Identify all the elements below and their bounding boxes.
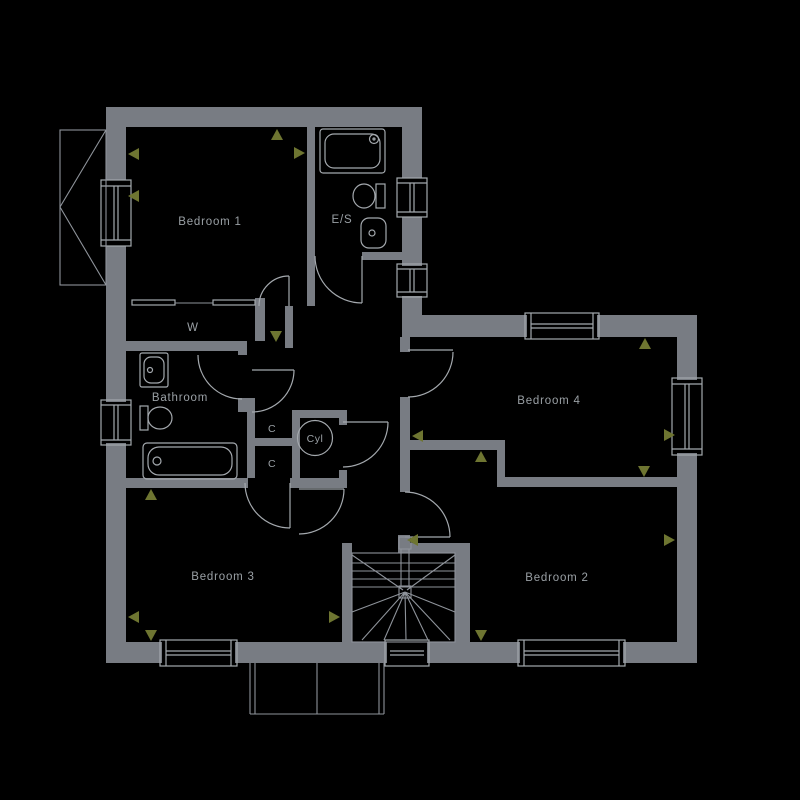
stairs <box>352 537 455 642</box>
door-hall <box>299 489 344 534</box>
toilet-icon <box>353 184 385 208</box>
door-cupboard <box>252 370 294 412</box>
door-cylinder <box>343 422 388 467</box>
arrow-left-icon <box>128 148 139 160</box>
room-labels: Bedroom 1 E/S W Bathroom C C Cyl Bedroom… <box>152 214 589 584</box>
label-bathroom: Bathroom <box>152 392 208 404</box>
shower-icon <box>320 129 385 173</box>
label-bedroom4: Bedroom 4 <box>517 395 580 407</box>
arrow-up-icon <box>475 451 487 462</box>
floorplan-drawing: Bedroom 1 E/S W Bathroom C C Cyl Bedroom… <box>0 0 800 800</box>
bathtub-icon <box>143 443 237 479</box>
chimney-outline <box>60 130 106 285</box>
arrow-down-icon <box>638 466 650 477</box>
arrow-down-icon <box>475 630 487 641</box>
toilet-icon <box>140 406 172 430</box>
arrow-up-icon <box>145 489 157 500</box>
arrow-right-icon <box>664 429 675 441</box>
sink-icon <box>361 218 386 248</box>
arrow-up-icon <box>271 129 283 140</box>
arrow-left-icon <box>128 611 139 623</box>
floorplan-canvas: Bedroom 1 E/S W Bathroom C C Cyl Bedroom… <box>0 0 800 800</box>
door-bedroom2 <box>405 492 450 537</box>
label-wardrobe: W <box>187 322 199 334</box>
label-bedroom3: Bedroom 3 <box>191 571 254 583</box>
arrow-down-icon <box>145 630 157 641</box>
porch-outline <box>250 663 384 714</box>
door-ensuite <box>315 256 362 303</box>
ensuite-fixtures <box>320 129 386 248</box>
door-bedroom3 <box>245 483 290 528</box>
label-ensuite: E/S <box>332 214 353 226</box>
arrow-right-icon <box>329 611 340 623</box>
arrow-right-icon <box>664 534 675 546</box>
door-bedroom4 <box>408 350 453 397</box>
arrow-up-icon <box>639 338 651 349</box>
arrow-right-icon <box>294 147 305 159</box>
wardrobe-doors <box>132 300 255 305</box>
label-bedroom1: Bedroom 1 <box>178 216 241 228</box>
bathroom-fixtures <box>140 353 237 479</box>
label-cylinder: Cyl <box>307 433 324 445</box>
label-cupboard-bottom: C <box>268 458 276 470</box>
arrow-down-icon <box>270 331 282 342</box>
arrow-left-icon <box>128 190 139 202</box>
sink-icon <box>140 353 168 387</box>
label-cupboard-top: C <box>268 423 276 435</box>
label-bedroom2: Bedroom 2 <box>525 572 588 584</box>
